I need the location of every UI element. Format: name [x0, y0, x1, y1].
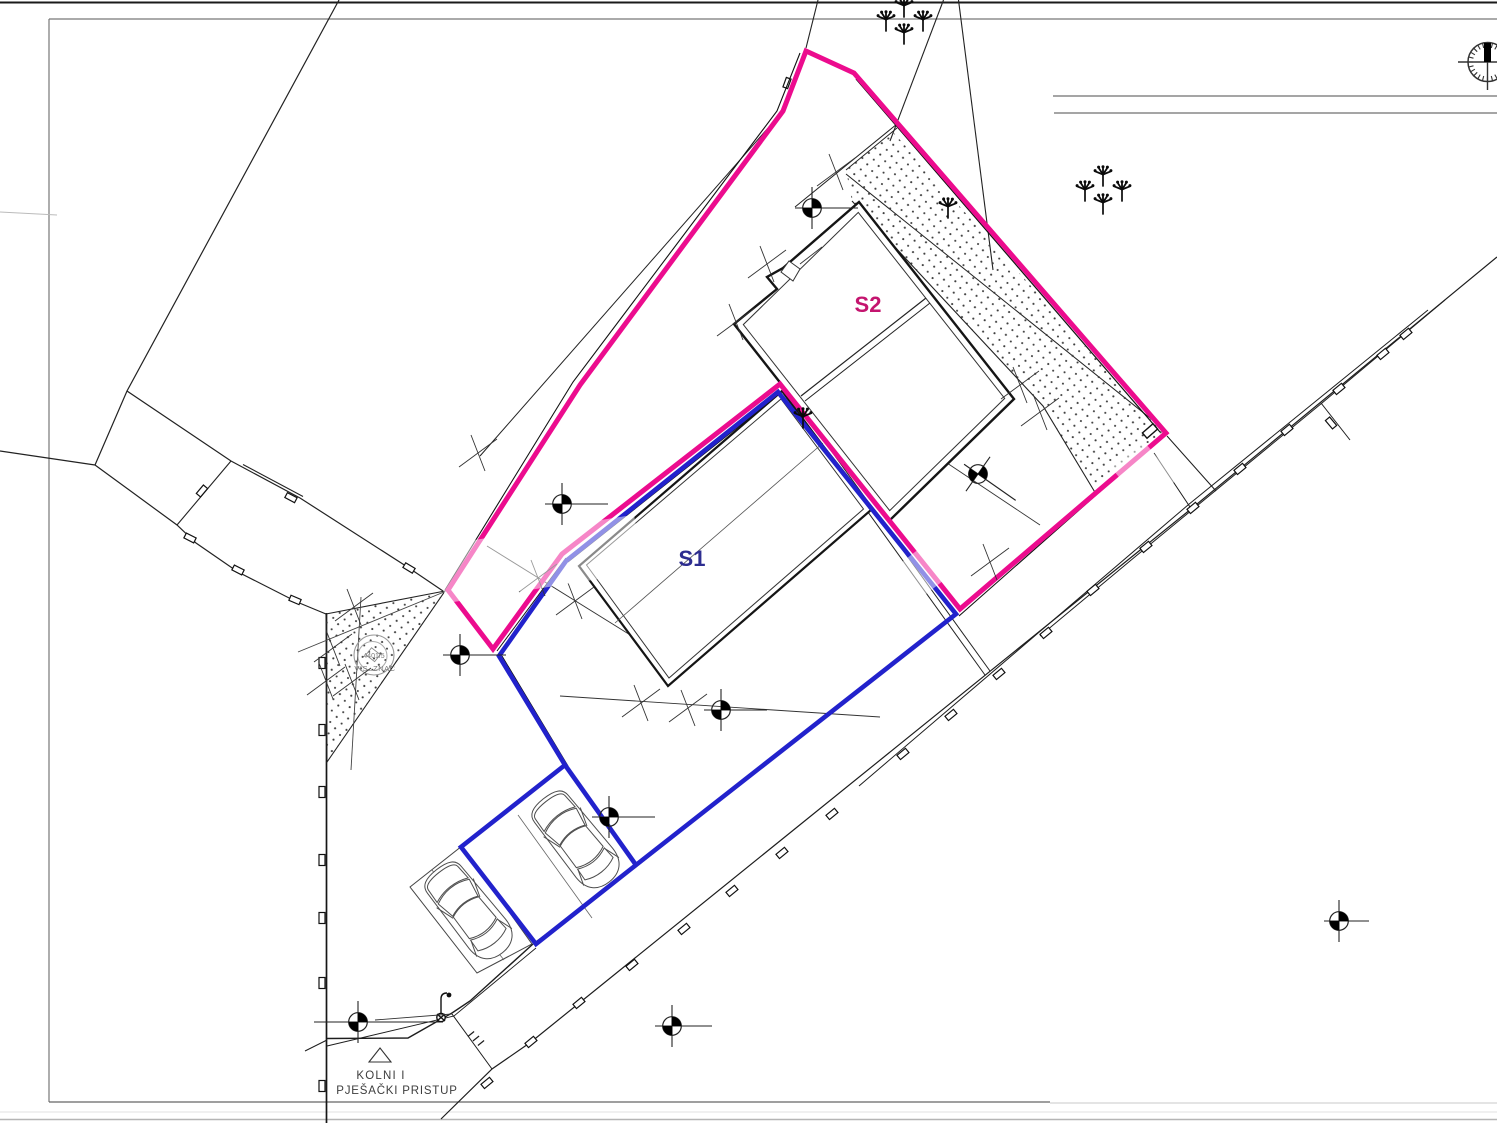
svg-text:PJEŠAČKI PRISTUP: PJEŠAČKI PRISTUP [336, 1084, 457, 1097]
svg-text:VIS. ZNAC: VIS. ZNAC [354, 664, 395, 673]
svg-text:KOLNI I: KOLNI I [356, 1070, 405, 1082]
svg-text:S1: S1 [679, 546, 706, 571]
svg-text:4401/5: 4401/5 [363, 653, 385, 660]
svg-text:S2: S2 [855, 292, 882, 317]
